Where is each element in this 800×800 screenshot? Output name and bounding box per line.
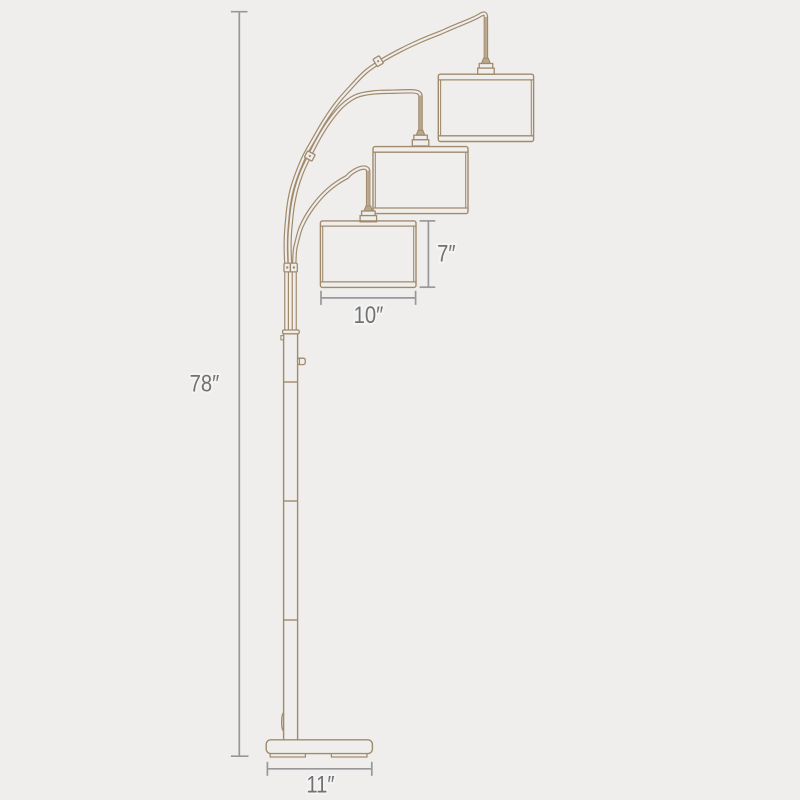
svg-text:11″: 11″ <box>306 771 334 798</box>
svg-text:10″: 10″ <box>354 302 384 329</box>
svg-text:7″: 7″ <box>437 240 456 267</box>
svg-text:78″: 78″ <box>190 370 220 397</box>
